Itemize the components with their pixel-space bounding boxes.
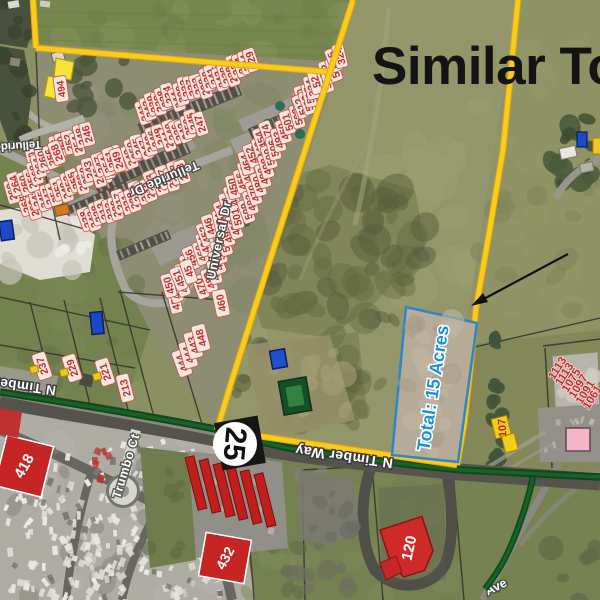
svg-text:494: 494 xyxy=(55,79,68,97)
svg-text:107: 107 xyxy=(496,418,509,437)
svg-text:Similar To...: Similar To... xyxy=(372,37,600,96)
svg-text:25: 25 xyxy=(217,426,253,462)
